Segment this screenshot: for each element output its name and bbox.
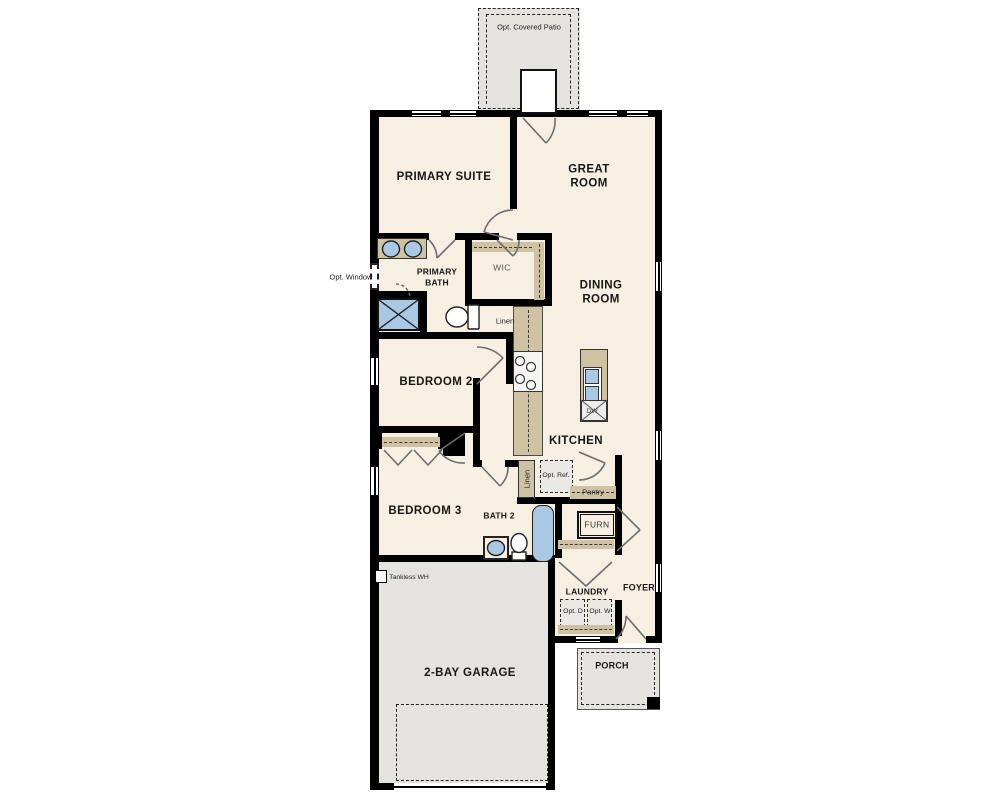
dishwasher-label: DW [581,408,603,416]
opt-ref-label: Opt. Ref. [542,472,570,480]
furnace-closet-shelf [558,540,614,549]
wall-garage-north [370,555,555,562]
bedroom3-closet-shelf [382,437,440,447]
window-bedroom3 [370,466,379,496]
hall-linen-label: Linen [522,459,531,499]
wall-exterior-left [370,110,379,790]
window-great-room-1 [588,110,618,117]
garage-label: 2-BAY GARAGE [420,666,520,680]
primary-bath-vanity [377,238,427,259]
bedroom2-label: BEDROOM 2 [376,375,496,389]
bath2-label: BATH 2 [482,511,516,522]
opt-window-label: Opt. Window [328,272,374,281]
window-primary-suite-1 [411,110,442,117]
wall-bedroom2-east [473,378,480,467]
porch-label: PORCH [582,660,642,671]
wall-pantry-furn-east [615,455,622,555]
patio-door-recess [520,69,557,114]
wall-bath2-north-b [505,460,518,467]
floor-plan: Opt. Covered Patio PRIMARY SUITE GREAT R… [0,0,1000,800]
dining-room-label: DINING ROOM [569,279,633,308]
primary-suite-label: PRIMARY SUITE [394,170,494,184]
patio-label: Opt. Covered Patio [489,22,569,31]
wall-primary-great-divider [510,117,517,209]
window-dining-room [655,261,662,292]
window-laundry-front [575,636,601,643]
wall-hall-north-b [455,233,499,240]
wall-laundry-east [615,600,622,636]
wall-hall-chunk [443,426,465,456]
bath2-tub [532,505,554,562]
bedroom3-label: BEDROOM 3 [365,504,485,518]
wall-wic-south [465,299,552,306]
window-primary-suite-2 [449,110,477,117]
wic-shelf-right [534,242,544,300]
window-kitchen [655,430,662,461]
kitchen-label: KITCHEN [526,434,626,448]
laundry-shelf [558,625,614,634]
pantry-label: Pantry [573,487,613,496]
bath-linen-label: Linen [485,316,525,325]
opt-dryer-label: Opt. D [561,608,585,616]
wall-front-b [646,636,662,643]
garage-door-line [394,786,546,788]
great-room-label: GREAT ROOM [551,163,627,192]
primary-shower [377,298,420,331]
island-sink-bowl-1 [585,369,599,384]
window-great-room-2 [626,110,649,117]
wall-bath-bedroom2 [377,332,517,339]
laundry-label: LAUNDRY [552,587,622,598]
porch-column [647,697,660,709]
furnace-label: FURN [577,520,617,531]
wic-label: WIC [482,263,522,274]
opt-washer-label: Opt. W [588,608,612,616]
wall-wic-right [545,233,552,306]
foyer-label: FOYER [614,582,664,593]
kitchen-range [513,351,543,392]
bath2-sink-counter [483,536,509,560]
garage-apron-dashed-outline [396,704,548,781]
tankless-wh-label: Tankless WH [384,574,434,582]
island-sink-bowl-2 [585,386,599,401]
wall-bath2-north-a [473,460,482,467]
primary-bath-label: PRIMARY BATH [406,266,468,287]
wall-kitchen-west [506,332,513,384]
